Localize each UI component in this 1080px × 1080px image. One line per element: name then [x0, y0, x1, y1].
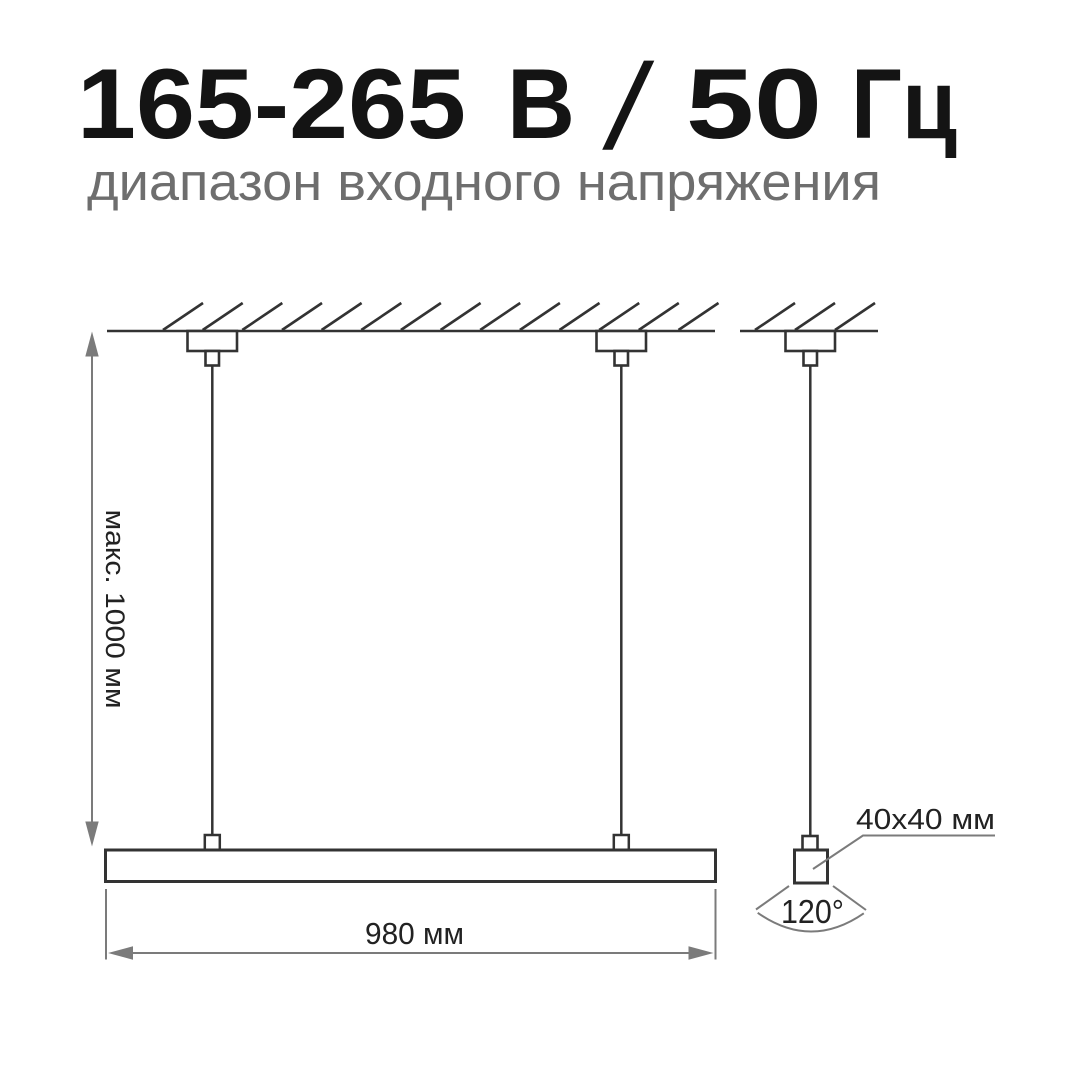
svg-text:165-265: 165-265	[77, 48, 466, 159]
svg-text:120°: 120°	[781, 893, 844, 930]
svg-text:Гц: Гц	[851, 48, 957, 159]
svg-text:макс. 1000 мм: макс. 1000 мм	[100, 510, 130, 709]
svg-text:диапазон входного напряжения: диапазон входного напряжения	[87, 153, 881, 212]
svg-text:50: 50	[686, 48, 822, 159]
svg-text:40x40 мм: 40x40 мм	[856, 804, 995, 836]
svg-text:980 мм: 980 мм	[365, 916, 464, 951]
svg-text:В: В	[507, 48, 575, 159]
